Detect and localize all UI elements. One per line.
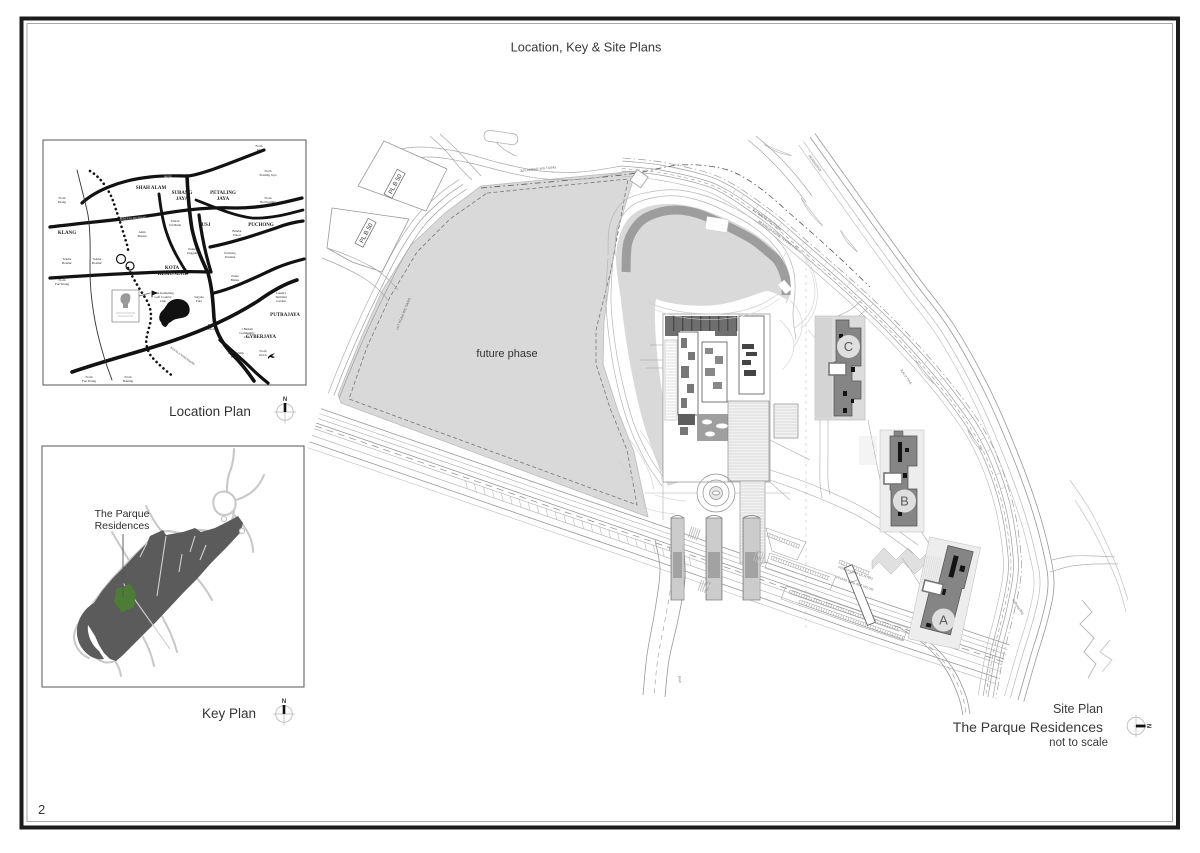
svg-text:N: N (283, 397, 287, 403)
svg-text:PETALING: PETALING (210, 191, 236, 196)
svg-text:Klang: Klang (58, 200, 66, 204)
svg-text:Puteri: Puteri (233, 233, 241, 237)
svg-text:Perdana: Perdana (225, 255, 236, 259)
svg-text:SHAH ALAM: SHAH ALAM (136, 186, 167, 191)
svg-text:Location, Key & Site Plans: Location, Key & Site Plans (511, 40, 662, 55)
svg-text:Banting: Banting (123, 379, 133, 383)
svg-text:N: N (282, 699, 286, 705)
svg-text:Pura: Pura (196, 299, 202, 303)
svg-text:Port Klang: Port Klang (82, 379, 96, 383)
svg-text:B: B (900, 494, 909, 509)
svg-text:Port Klang: Port Klang (55, 282, 69, 286)
svg-text:KLANG: KLANG (58, 231, 76, 236)
svg-text:2: 2 (38, 802, 45, 817)
svg-text:KLIA: KLIA (259, 353, 267, 357)
svg-text:Unggun: Unggun (187, 251, 198, 255)
svg-text:C: C (844, 339, 853, 354)
svg-text:Location Plan: Location Plan (169, 404, 251, 419)
svg-text:KEMUNING: KEMUNING (158, 272, 187, 277)
svg-text:CYBERJAYA: CYBERJAYA (246, 335, 276, 340)
svg-text:Bei Petaling: Bei Petaling (260, 200, 276, 204)
svg-text:Garden: Garden (276, 299, 286, 303)
svg-text:N: N (1145, 724, 1151, 728)
svg-text:SUBANG: SUBANG (172, 191, 193, 196)
svg-text:The Parque: The Parque (95, 508, 150, 520)
svg-text:Bisnes: Bisnes (231, 278, 240, 282)
svg-text:Wetland: Wetland (231, 355, 242, 359)
svg-text:JAYA: JAYA (217, 197, 230, 202)
svg-text:The Parque Residences: The Parque Residences (953, 719, 1103, 735)
svg-text:future phase: future phase (476, 348, 537, 360)
svg-text:KL: KL (257, 148, 261, 152)
svg-text:Impian: Impian (137, 234, 146, 238)
svg-text:Club: Club (244, 335, 251, 339)
svg-text:Site Plan: Site Plan (1053, 702, 1103, 716)
svg-text:Botanic: Botanic (62, 261, 72, 265)
svg-text:Sri Muda: Sri Muda (169, 223, 182, 227)
svg-text:PUCHONG: PUCHONG (248, 223, 274, 228)
svg-text:NKVE: NKVE (164, 175, 172, 178)
svg-text:Botanic: Botanic (92, 261, 102, 265)
svg-text:Club: Club (160, 299, 167, 303)
svg-text:KOTA: KOTA (165, 266, 180, 271)
svg-text:Key Plan: Key Plan (202, 706, 256, 721)
svg-text:Function: Function (206, 327, 218, 331)
svg-text:A: A (939, 613, 948, 628)
svg-text:Residences: Residences (95, 520, 150, 532)
svg-text:Petaling Jaya: Petaling Jaya (260, 173, 277, 177)
svg-text:PUTRAJAYA: PUTRAJAYA (270, 313, 300, 318)
svg-text:not to scale: not to scale (1049, 737, 1108, 749)
svg-text:JAYA: JAYA (176, 197, 189, 202)
svg-text:USJ: USJ (202, 223, 211, 228)
